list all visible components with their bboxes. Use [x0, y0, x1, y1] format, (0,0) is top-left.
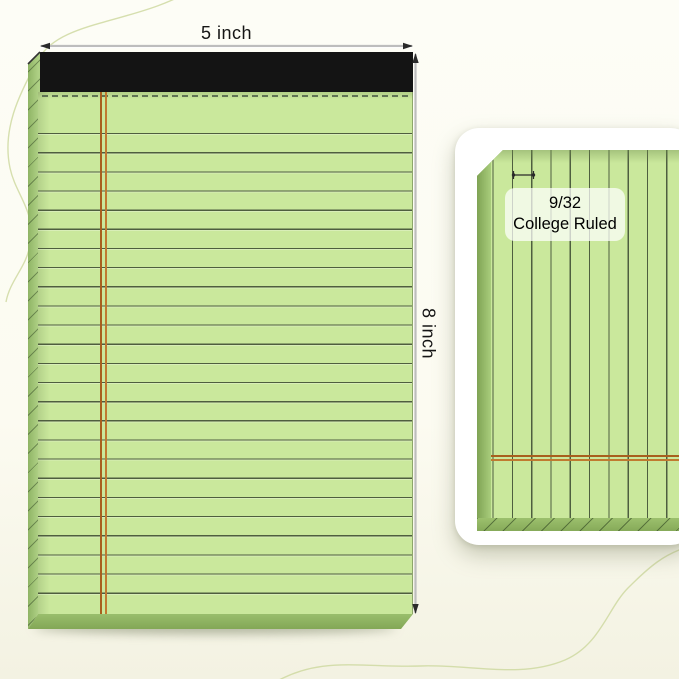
ruling-callout-fraction: 9/32	[505, 193, 625, 214]
perforation-line	[42, 95, 408, 97]
margin-line	[100, 92, 102, 614]
notepad-paper	[38, 92, 413, 614]
margin-line	[105, 92, 107, 614]
detail-margin-line	[491, 459, 679, 461]
notepad-binding	[40, 52, 413, 92]
notepad-bottom-edge	[28, 614, 413, 629]
ruling-callout-text: College Ruled	[505, 214, 625, 235]
spacing-dimension-dot	[532, 173, 535, 176]
detail-margin-line	[491, 455, 679, 457]
height-dimension-label-wrap: 8 inch	[416, 53, 440, 614]
height-dimension-label: 8 inch	[418, 308, 439, 359]
width-dimension-label: 5 inch	[40, 23, 413, 44]
detail-card: 9/32 College Ruled	[455, 128, 679, 545]
detail-pad-side-edge	[477, 150, 491, 531]
spacing-dimension-dot	[512, 173, 515, 176]
spacing-dimension-arrow	[505, 167, 545, 183]
detail-pad-bottom-edge	[477, 518, 679, 531]
product-image-stage: 5 inch 8 inch 9/32 College Ruled	[0, 0, 679, 679]
ruling-callout: 9/32 College Ruled	[505, 188, 625, 241]
ruled-lines	[38, 133, 412, 595]
